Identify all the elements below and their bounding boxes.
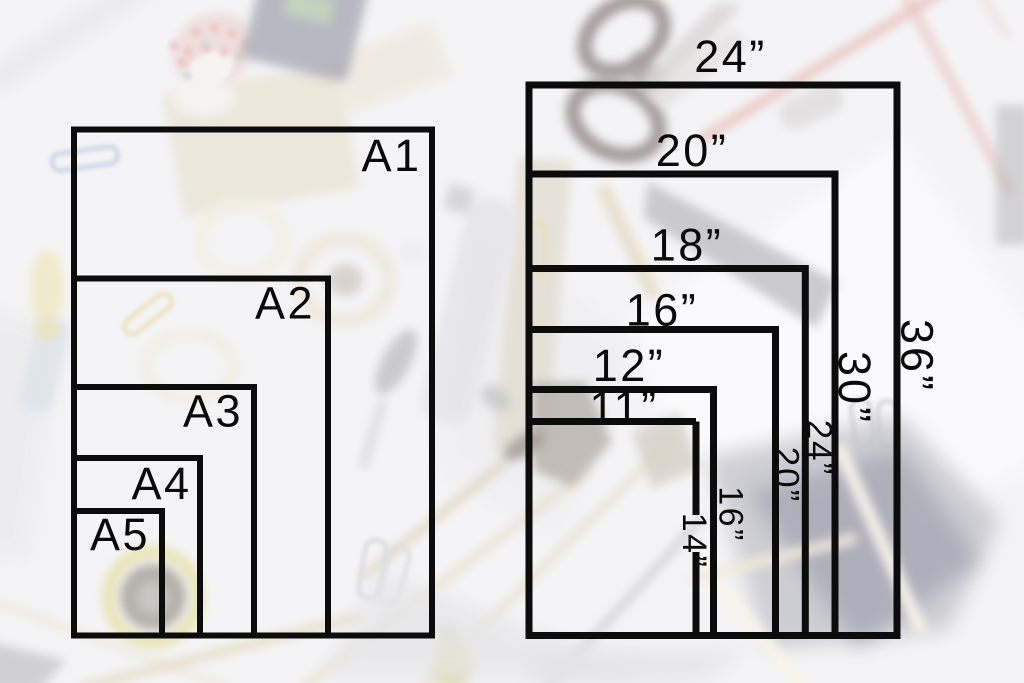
svg-text:36”: 36”	[892, 319, 943, 393]
svg-text:A1: A1	[361, 130, 421, 181]
svg-text:11”: 11”	[589, 382, 658, 433]
svg-text:A3: A3	[183, 386, 243, 437]
svg-text:20”: 20”	[656, 125, 729, 176]
svg-text:30”: 30”	[829, 351, 880, 425]
svg-text:16”: 16”	[712, 486, 750, 543]
svg-text:A2: A2	[255, 278, 315, 329]
svg-text:18”: 18”	[651, 220, 724, 271]
svg-text:A4: A4	[131, 458, 191, 509]
svg-text:16”: 16”	[626, 285, 699, 336]
svg-text:20”: 20”	[767, 447, 806, 504]
svg-text:A5: A5	[90, 509, 150, 560]
svg-text:24”: 24”	[694, 31, 767, 82]
svg-text:14”: 14”	[675, 513, 713, 570]
